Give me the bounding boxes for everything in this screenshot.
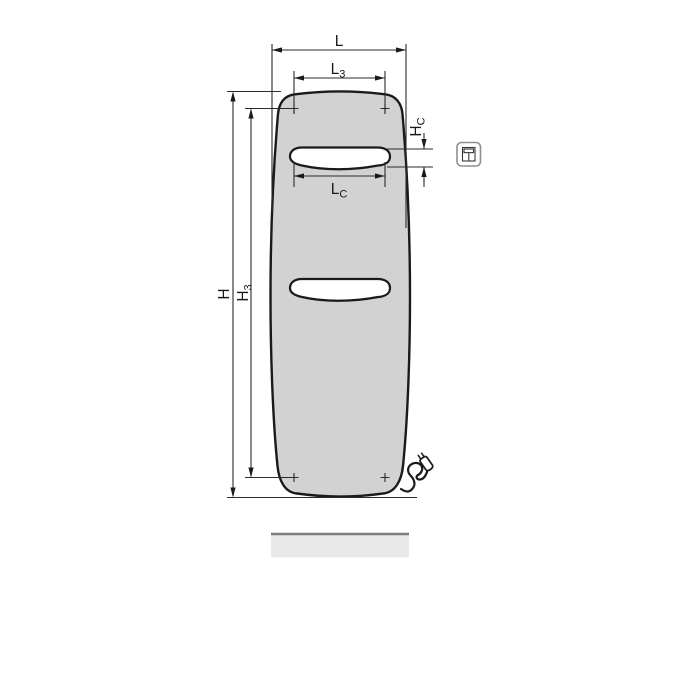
dim-label-L3: L3 [331, 61, 346, 81]
arrowhead [248, 109, 253, 119]
arrowhead [375, 75, 385, 80]
arrowhead [272, 47, 282, 52]
plug-pin [418, 455, 421, 459]
dim-label-HC-sub: C [416, 117, 428, 125]
dim-label-L3-sub: 3 [339, 69, 345, 81]
dim-label-L-base: L [335, 33, 344, 50]
dim-label-HC-base: H [408, 125, 425, 136]
dim-label-H3: H3 [235, 284, 255, 301]
dim-label-H3-sub: 3 [243, 284, 255, 290]
middle-cutout-slot [290, 279, 390, 301]
arrowhead [230, 92, 235, 102]
upper-cutout-slot [290, 148, 390, 170]
dim-label-H: H [216, 288, 233, 299]
power-plug [416, 452, 433, 472]
dim-label-HC: HC [408, 117, 428, 136]
dim-label-LC-sub: C [339, 189, 347, 201]
plug-pin [421, 453, 424, 457]
dim-label-H-base: H [216, 288, 233, 299]
dimension-drawing: L L3 LC HC H [0, 0, 700, 700]
dim-label-L: L [335, 33, 344, 50]
arrowhead [421, 139, 426, 149]
arrowhead [396, 47, 406, 52]
dimension-drawing-canvas: L L3 LC HC H [0, 0, 700, 700]
arrowhead [421, 167, 426, 177]
floor-strip [271, 534, 409, 558]
floor-strip-body [271, 535, 409, 558]
dim-label-H3-base: H [235, 290, 252, 301]
arrowhead [248, 468, 253, 478]
arrowhead [294, 75, 304, 80]
radiator-model-pictogram-icon [457, 143, 481, 167]
arrowhead [230, 488, 235, 498]
